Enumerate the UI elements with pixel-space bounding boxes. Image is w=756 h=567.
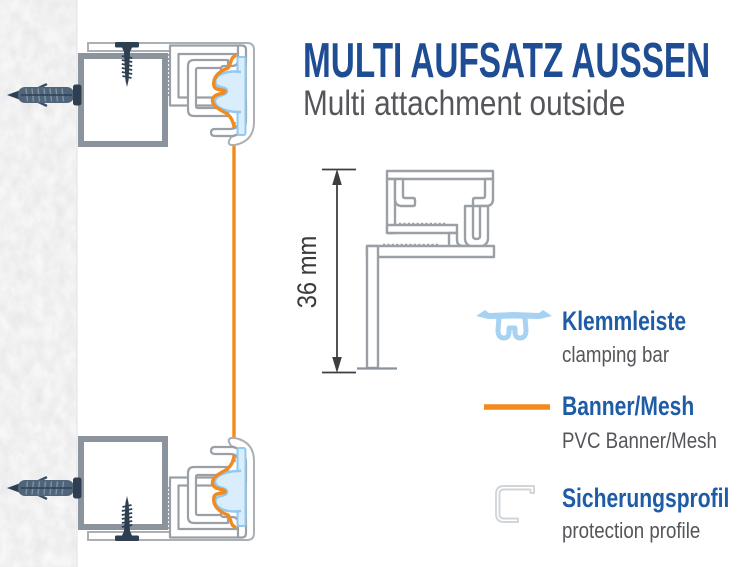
clamping-bar-icon <box>474 300 554 350</box>
legend-label-klemmleiste: Klemmleiste <box>562 308 721 335</box>
page-title-text: MULTI AUFSATZ AUSSEN <box>303 37 710 86</box>
page-subtitle: Multi attachment outside <box>303 86 682 121</box>
legend-label-banner-mesh: Banner/Mesh <box>562 393 732 420</box>
banner-line-icon <box>480 399 554 415</box>
legend-sublabel-clamping-bar: clamping bar <box>562 344 688 366</box>
profile-cross-section-diagram: 36 mm <box>288 150 522 387</box>
legend-sublabel-protection-profile: protection profile <box>562 520 725 542</box>
protection-profile-icon <box>490 480 546 528</box>
dimension-label: 36 mm <box>293 236 323 309</box>
page-title: MULTI AUFSATZ AUSSEN <box>303 37 756 86</box>
legend-label-sicherungsprofil: Sicherungsprofil <box>562 485 756 512</box>
infographic-canvas: MULTI AUFSATZ AUSSEN Multi attachment ou… <box>0 0 756 567</box>
legend-sublabel-pvc-banner: PVC Banner/Mesh <box>562 430 744 452</box>
page-subtitle-text: Multi attachment outside <box>303 86 625 121</box>
dimension-36mm: 36 mm <box>293 169 356 373</box>
wall-assembly-diagram <box>0 0 280 567</box>
